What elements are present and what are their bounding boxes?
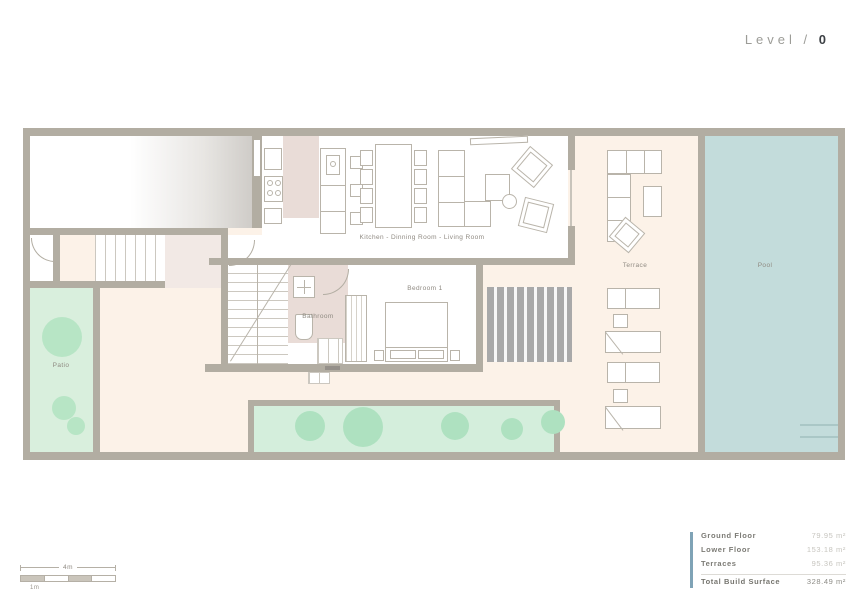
dining-chair [360,188,373,204]
sun-lounger [607,288,660,309]
row-label: Ground Floor [701,531,756,540]
dimension-total-label: 4m [59,564,77,571]
wardrobe [345,295,367,362]
island-divider [321,185,345,186]
bathroom-sink [293,276,315,298]
level-number: 0 [819,32,830,47]
dining-chair [360,150,373,166]
kitchen-island [320,148,346,234]
table-row: Ground Floor 79.95 m² [701,531,846,545]
level-label: Level / [745,32,811,47]
wall [698,136,705,452]
kitchen-floor [283,136,319,218]
bed-line [386,347,447,348]
lounger-line [625,289,626,308]
pool-area [705,136,838,452]
wall [568,136,575,170]
bed [385,302,448,362]
wall [221,235,228,372]
bush [541,410,565,434]
dining-chair [414,207,427,223]
total-label: Total Build Surface [701,577,780,586]
cushion-line [644,151,645,173]
wall [476,265,483,372]
faucet [330,161,336,167]
dimension-segment [21,567,59,568]
bush [501,418,523,440]
bathroom-label: Bathroom [278,314,358,321]
burner [267,190,273,196]
door-slit [254,140,260,176]
scale-segment [44,576,68,581]
cushion-line [626,151,627,173]
wall [209,258,575,265]
row-label: Lower Floor [701,545,751,554]
floor-plan: Kitchen - Dinning Room - Living Room Bed… [23,128,845,460]
side-table [613,314,628,328]
area-summary-table: Ground Floor 79.95 m² Lower Floor 153.18… [690,531,846,591]
side-table [613,389,628,403]
table-divider [701,574,846,575]
row-value: 79.95 m² [812,531,846,540]
wall [838,128,845,460]
wall [23,228,228,235]
bush [42,317,82,357]
pool-steps [800,424,838,426]
row-value: 95.36 m² [812,559,846,568]
bedroom-steps [317,338,343,364]
bush [67,417,85,435]
sun-lounger [605,406,661,429]
burner [267,180,273,186]
lounger-diagonal [605,332,623,355]
dining-chair [414,188,427,204]
fridge [264,148,282,170]
armchair-seat [523,202,550,229]
scale-bar: 4m 1m [20,563,116,591]
bedroom-label: Bedroom 1 [385,286,465,293]
terrace-label: Terrace [607,263,663,270]
pergola-deck [487,287,572,362]
dining-table [375,144,412,228]
lounger-line [625,363,626,382]
bush [441,412,469,440]
table-row: Lower Floor 153.18 m² [701,545,846,559]
table-total-row: Total Build Surface 328.49 m² [701,577,846,591]
sun-lounger [607,362,660,383]
bush [295,411,325,441]
wall [23,128,845,136]
burner [275,180,281,186]
dining-chair [414,150,427,166]
dining-chair [414,169,427,185]
exterior-stairs [95,235,165,281]
window-segment [325,366,340,370]
scale-unit-label: 1m [30,585,116,591]
wall [568,226,575,265]
scale-segment [68,576,92,581]
wall [93,288,100,452]
nightstand [450,350,460,361]
row-value: 153.18 m² [807,545,846,554]
wall [23,128,30,460]
row-label: Terraces [701,559,737,568]
lounger-diagonal [605,407,623,431]
page-title: Level / 0 [745,32,830,47]
dining-chair [360,169,373,185]
driveway [30,136,252,228]
pouf [502,194,517,209]
pillow [390,350,416,359]
sun-lounger [605,331,661,353]
cabinet [264,208,282,224]
scale-segment [91,576,115,581]
patio-label: Patio [33,363,89,370]
pool-label: Pool [735,263,795,270]
outdoor-sofa [607,150,662,174]
planter-strip [248,400,560,452]
garden-steps [308,372,330,384]
dining-chair [360,207,373,223]
dimension-segment [77,567,115,568]
burner [275,190,281,196]
sink-cross [304,280,305,294]
sofa-corner [464,201,491,227]
chair-seat [614,222,639,247]
glass-door [570,170,572,226]
wall [205,364,483,372]
accent-bar [690,532,693,588]
bush [343,407,383,447]
wall [23,452,845,460]
table-row: Terraces 95.36 m² [701,559,846,573]
pillow [418,350,444,359]
scale-segment [21,576,44,581]
total-value: 328.49 m² [807,577,846,586]
sofa [438,150,465,227]
cushion-line [608,197,630,198]
main-room-label: Kitchen - Dinning Room - Living Room [337,235,507,242]
outdoor-table [643,186,662,217]
scale-segments [20,575,116,582]
cushion-line [439,202,464,203]
island-divider [321,211,345,212]
nightstand [374,350,384,361]
wall [23,281,165,288]
dimension-line: 4m [20,563,116,572]
cushion-line [439,176,464,177]
pool-steps [800,436,838,438]
stove [264,176,283,202]
